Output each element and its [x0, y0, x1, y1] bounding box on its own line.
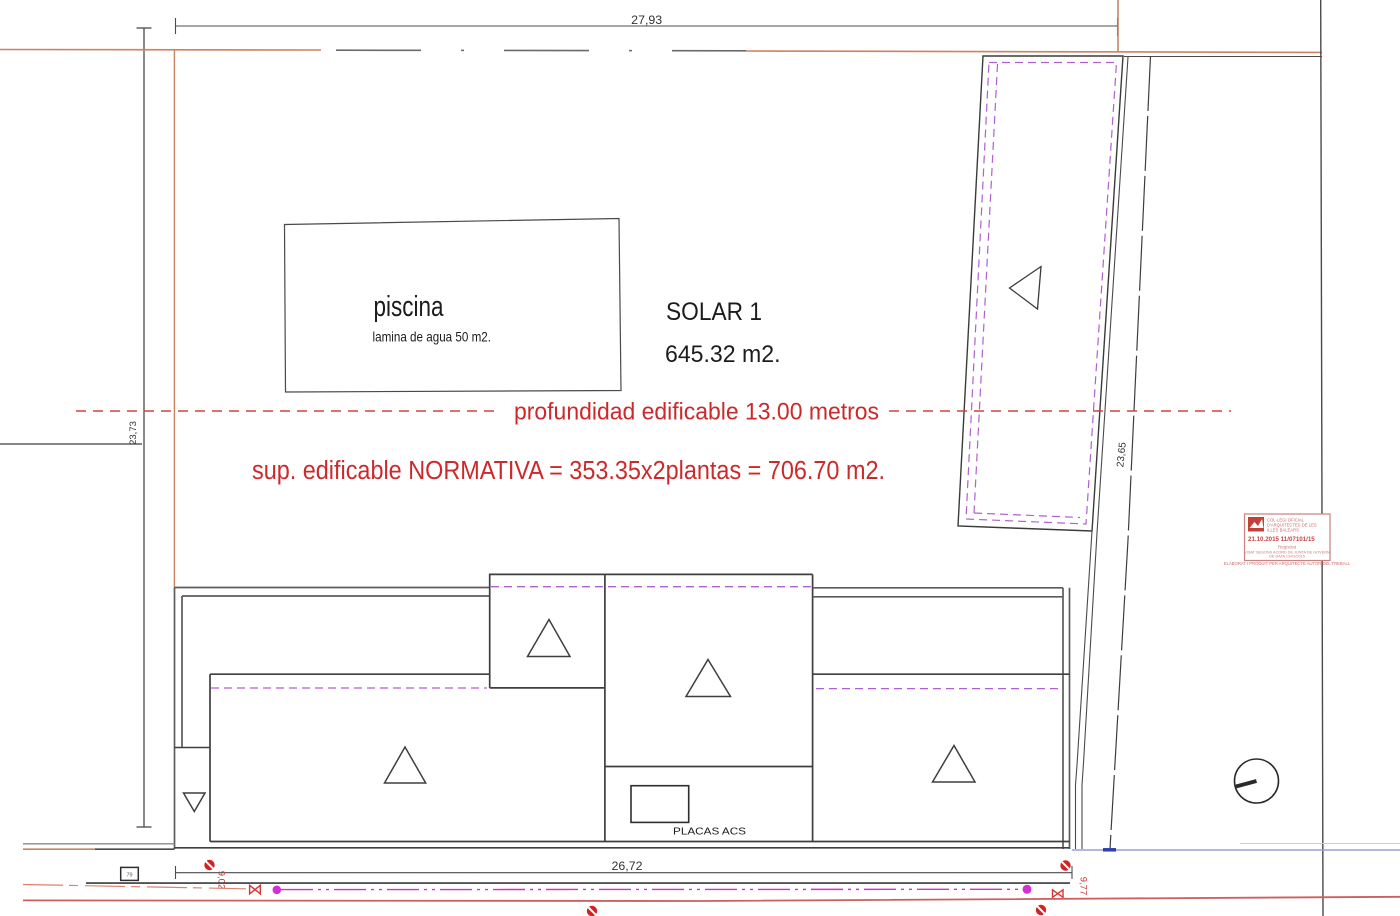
svg-text:27,93: 27,93: [631, 13, 662, 27]
svg-text:9,02: 9,02: [216, 871, 227, 890]
svg-text:ELABORAT I PRODUIT PER ARQUITE: ELABORAT I PRODUIT PER ARQUITECTE AUTOR …: [1224, 561, 1351, 566]
svg-text:9,77: 9,77: [1078, 877, 1089, 896]
svg-text:PLACAS ACS: PLACAS ACS: [673, 827, 746, 838]
svg-text:lamina de agua 50 m2.: lamina de agua 50 m2.: [373, 329, 492, 345]
svg-text:79: 79: [126, 873, 132, 879]
svg-text:21.10.2015 11/07101/15: 21.10.2015 11/07101/15: [1248, 536, 1315, 543]
svg-text:ILLES BALEARS: ILLES BALEARS: [1267, 528, 1299, 533]
svg-text:sup. edificable NORMATIVA = 3: sup. edificable NORMATIVA = 353.35x2plan…: [252, 457, 885, 485]
svg-text:DE DATA 13/03/2015: DE DATA 13/03/2015: [1269, 555, 1305, 559]
svg-text:645.32 m2.: 645.32 m2.: [665, 341, 781, 368]
svg-text:SOLAR 1: SOLAR 1: [666, 298, 762, 326]
svg-text:23,73: 23,73: [128, 421, 139, 445]
svg-text:Registrat: Registrat: [1278, 545, 1297, 550]
svg-text:profundidad edificable 13.00: profundidad edificable 13.00 metros: [514, 399, 879, 426]
svg-text:26,72: 26,72: [612, 859, 643, 873]
svg-text:piscina: piscina: [374, 291, 445, 323]
